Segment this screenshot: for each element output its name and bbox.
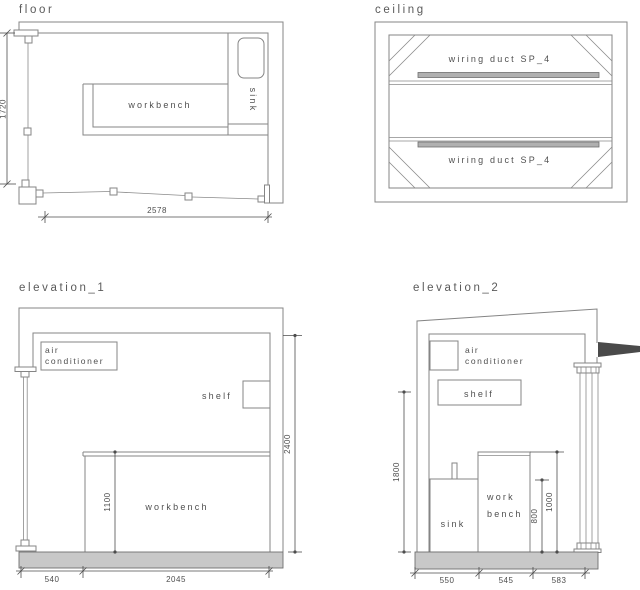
elevation1-post	[15, 367, 36, 551]
elevation2-dim-wall-height: 1800	[392, 390, 411, 553]
elevation2-ac-label-line1: air	[465, 345, 479, 355]
drawing-sheet: floor	[0, 0, 640, 590]
floor-wiring-left	[22, 43, 31, 187]
elevation1-ac-label-line1: air	[45, 345, 59, 355]
elevation2-dim-bottom: 550 545 583	[410, 567, 590, 585]
floor-dim-height-value: 1720	[0, 99, 8, 119]
sink-faucet	[452, 463, 457, 479]
elevation2-dim-workbench-height: 1000	[530, 450, 564, 553]
elevation1-dim-ceiling-height-value: 2400	[283, 434, 292, 454]
floor-wiring-bottom	[43, 185, 270, 203]
floor-dim-width-value: 2578	[147, 206, 167, 215]
elevation2-dim-wall-height-value: 1800	[392, 462, 401, 482]
elevation2-air-conditioner: air conditioner	[430, 341, 524, 370]
elevation1-panel: elevation_1 air conditioner shelf	[15, 282, 302, 584]
ceiling-duct-bottom: wiring duct SP_4	[389, 138, 612, 166]
floor-plan-panel: floor	[0, 4, 283, 223]
ceiling-duct-top: wiring duct SP_4	[389, 54, 612, 85]
elevation2-dim-bottom-3-value: 583	[552, 576, 567, 585]
elevation2-dim-bottom-2-value: 545	[499, 576, 514, 585]
elevation2-dim-bottom-1-value: 550	[440, 576, 455, 585]
ceiling-frame	[375, 22, 627, 202]
architectural-drawing: floor	[0, 0, 640, 590]
elevation2-panel: elevation_2 air conditioner	[392, 282, 640, 585]
elevation2-title: elevation_2	[413, 282, 500, 294]
floor-title: floor	[19, 4, 54, 16]
floor-workbench: workbench	[83, 33, 268, 135]
elevation1-shelf: shelf	[202, 381, 270, 408]
elevation1-workbench-label: workbench	[144, 502, 208, 512]
floor-sink-label: sink	[248, 88, 258, 113]
elevation2-workbench: work bench	[478, 452, 530, 552]
elevation1-ac-label-line2: conditioner	[45, 356, 104, 366]
elevation1-shelf-label: shelf	[202, 391, 232, 401]
elevation2-shelf: shelf	[438, 380, 521, 405]
elevation2-sink: sink	[430, 463, 478, 552]
elevation1-dim-workbench-height-value: 1100	[103, 492, 112, 511]
ceiling-duct-top-label: wiring duct SP_4	[448, 54, 552, 64]
floor-junction-box	[19, 187, 43, 204]
elevation2-workbench-label-line2: bench	[487, 509, 523, 519]
elevation2-workbench-label-line1: work	[486, 492, 515, 502]
elevation1-title: elevation_1	[19, 282, 106, 294]
elevation1-dim-bottom-right-value: 2045	[166, 575, 186, 584]
elevation2-floor-slab	[415, 552, 598, 569]
ceiling-duct-bottom-label: wiring duct SP_4	[448, 155, 552, 165]
elevation2-ac-label-line2: conditioner	[465, 356, 524, 366]
elevation1-dim-bottom-left-value: 540	[45, 575, 60, 584]
elevation2-dim-sink-height: 800	[530, 478, 549, 553]
elevation2-shelf-label: shelf	[464, 389, 494, 399]
elevation2-dim-sink-height-value: 800	[530, 509, 539, 524]
elevation2-dim-workbench-height-value: 1000	[545, 492, 554, 512]
floor-dim-width: 2578	[38, 206, 272, 223]
elevation1-air-conditioner: air conditioner	[41, 342, 117, 370]
floor-sink: sink	[238, 38, 264, 112]
elevation1-dim-ceiling-height: 2400	[283, 334, 302, 554]
ceiling-title: ceiling	[375, 4, 426, 16]
floor-dim-height: 1720	[0, 30, 16, 188]
elevation2-post	[574, 363, 601, 553]
elevation1-dim-bottom: 540 2045	[16, 566, 273, 584]
elevation2-sink-label: sink	[441, 519, 466, 529]
sink-basin	[238, 38, 264, 78]
floor-workbench-label: workbench	[127, 100, 191, 110]
ceiling-plan-panel: ceiling wiring duct SP_4 wiring duct SP_…	[375, 4, 627, 202]
elevation2-roof-eave	[598, 342, 640, 357]
floor-walls	[19, 22, 283, 203]
elevation1-floor-slab	[19, 552, 283, 568]
floor-corner-bracket	[14, 30, 38, 43]
elevation1-dim-workbench-height: 1100	[103, 450, 117, 553]
